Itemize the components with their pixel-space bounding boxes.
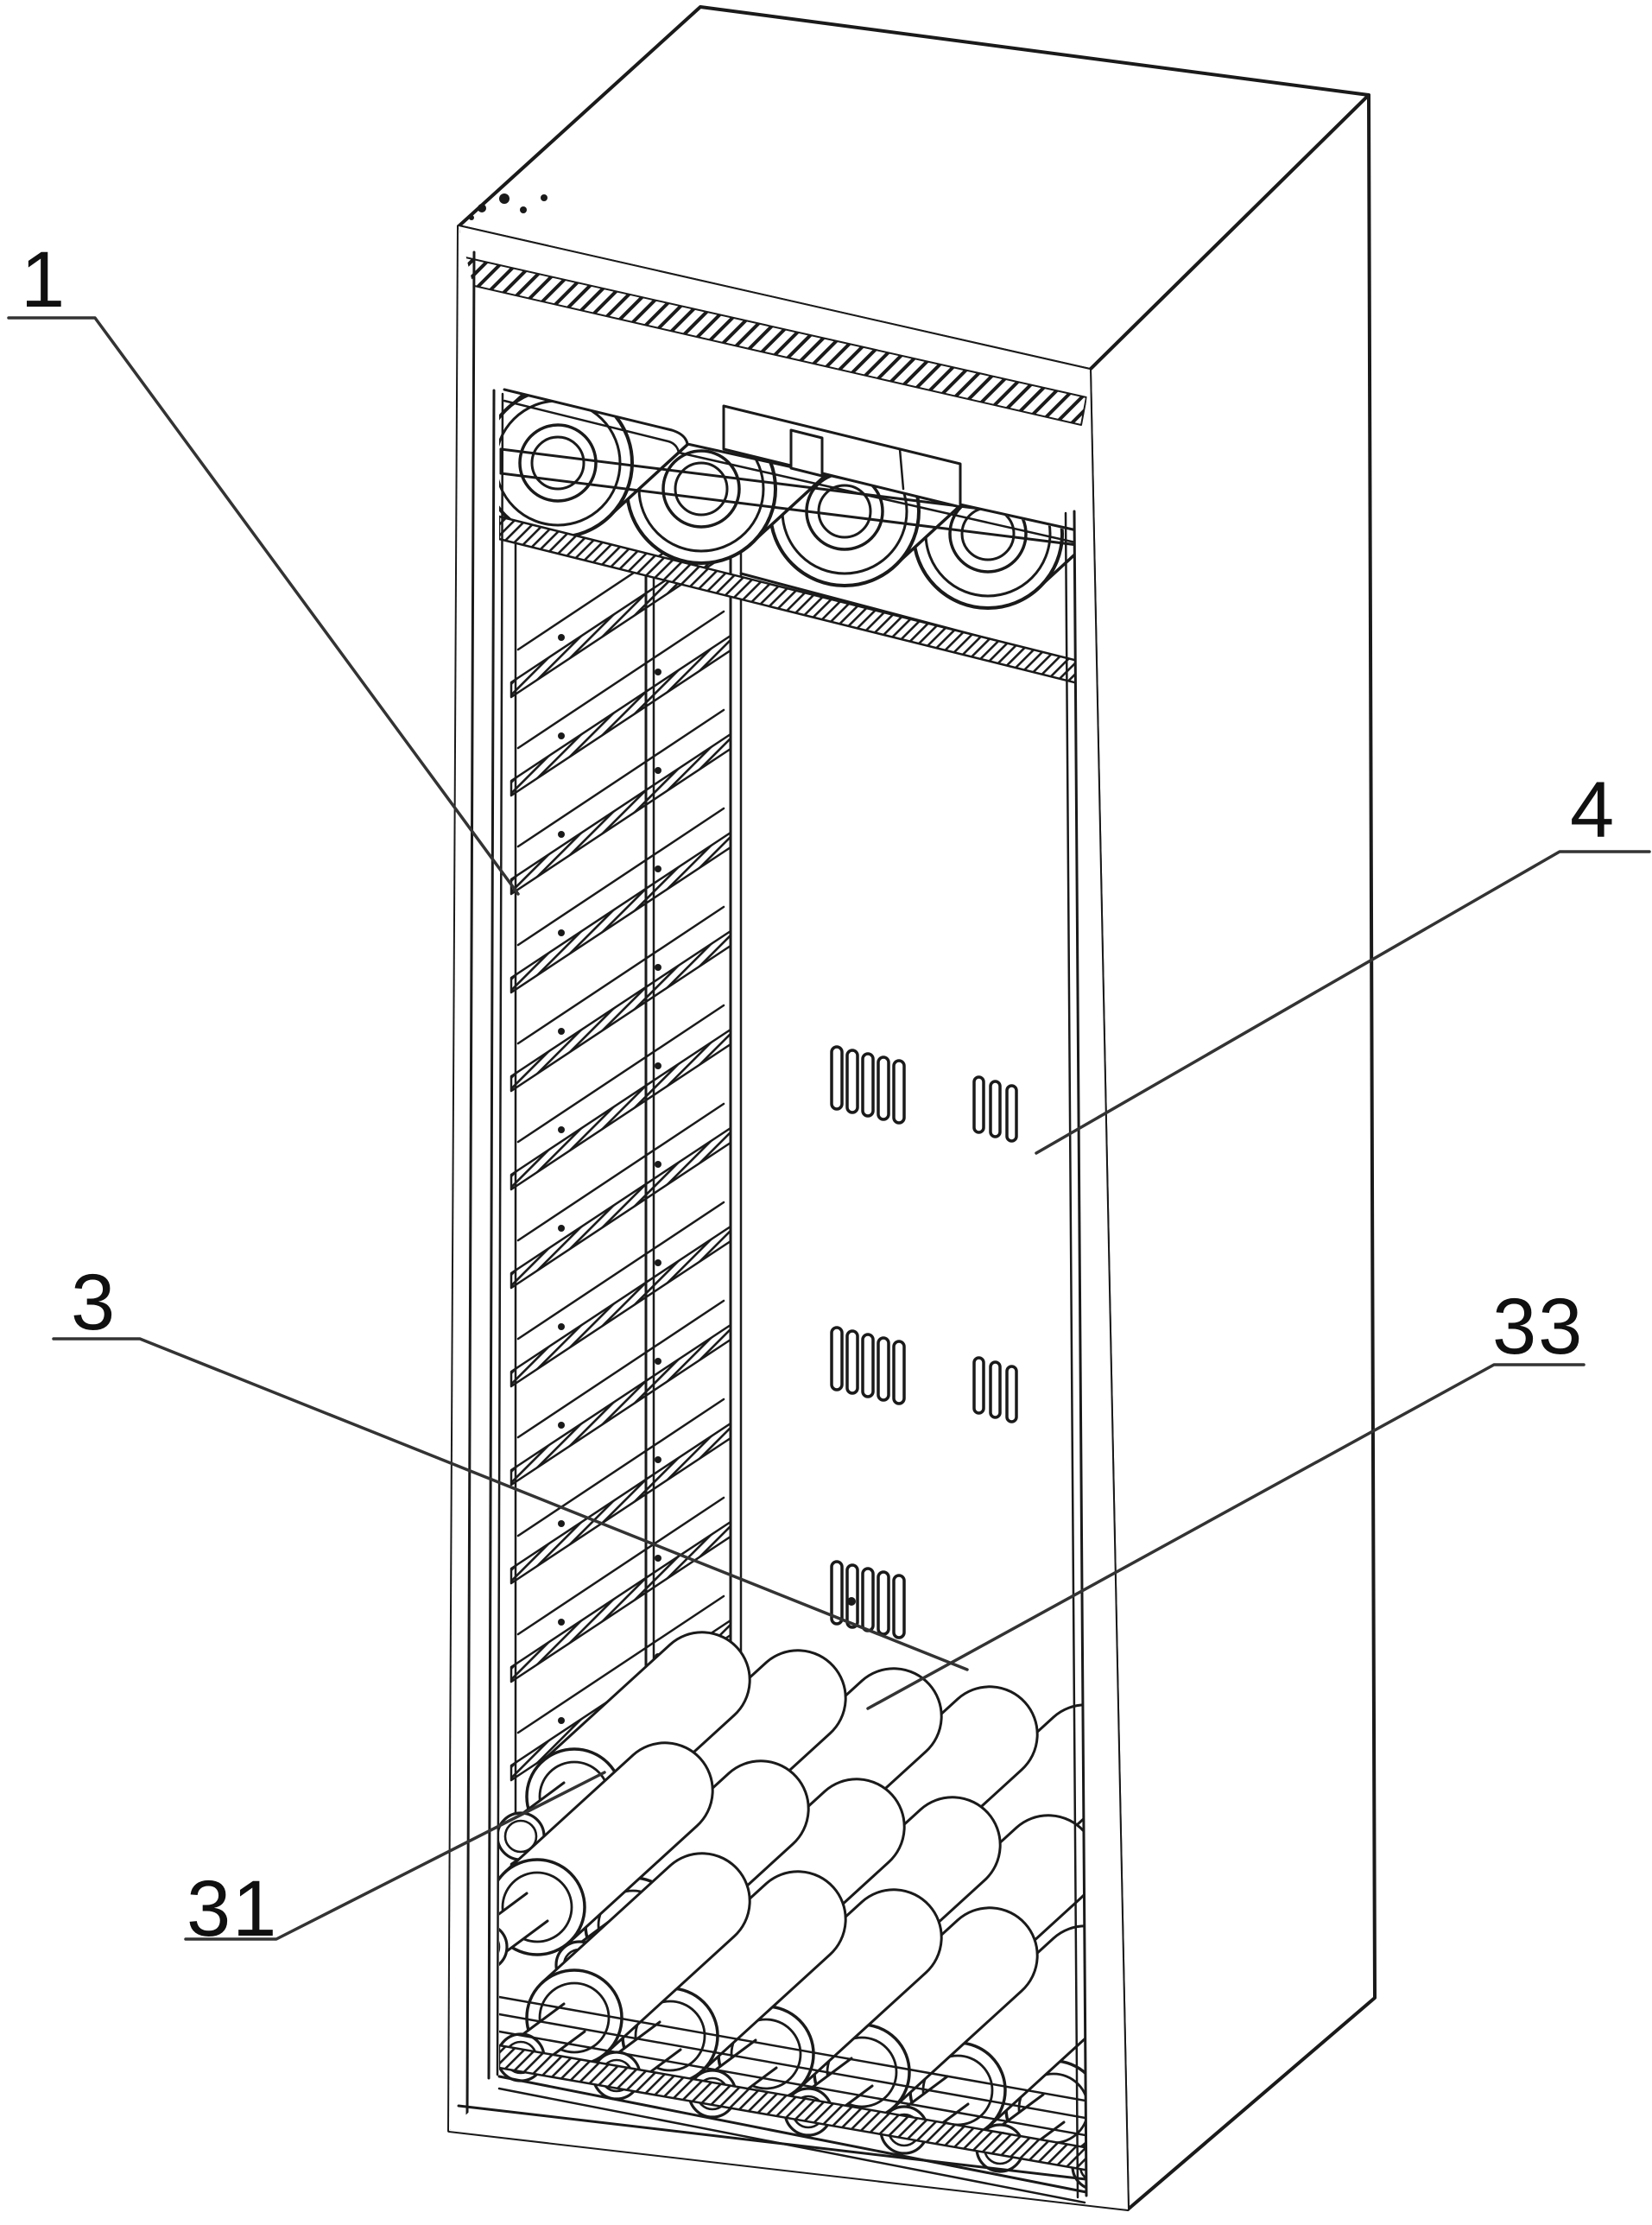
leader-ref-1 [9,318,518,894]
ref-label-31: 31 [187,1869,278,1949]
ref-label-33: 33 [1492,1287,1584,1366]
patent-figure-page: 1 4 3 33 31 [0,0,1652,2225]
ref-label-3: 3 [71,1263,117,1342]
cabinet-right-face [1090,95,1375,2209]
ref-label-1: 1 [21,240,66,320]
ref-label-4: 4 [1570,770,1616,850]
